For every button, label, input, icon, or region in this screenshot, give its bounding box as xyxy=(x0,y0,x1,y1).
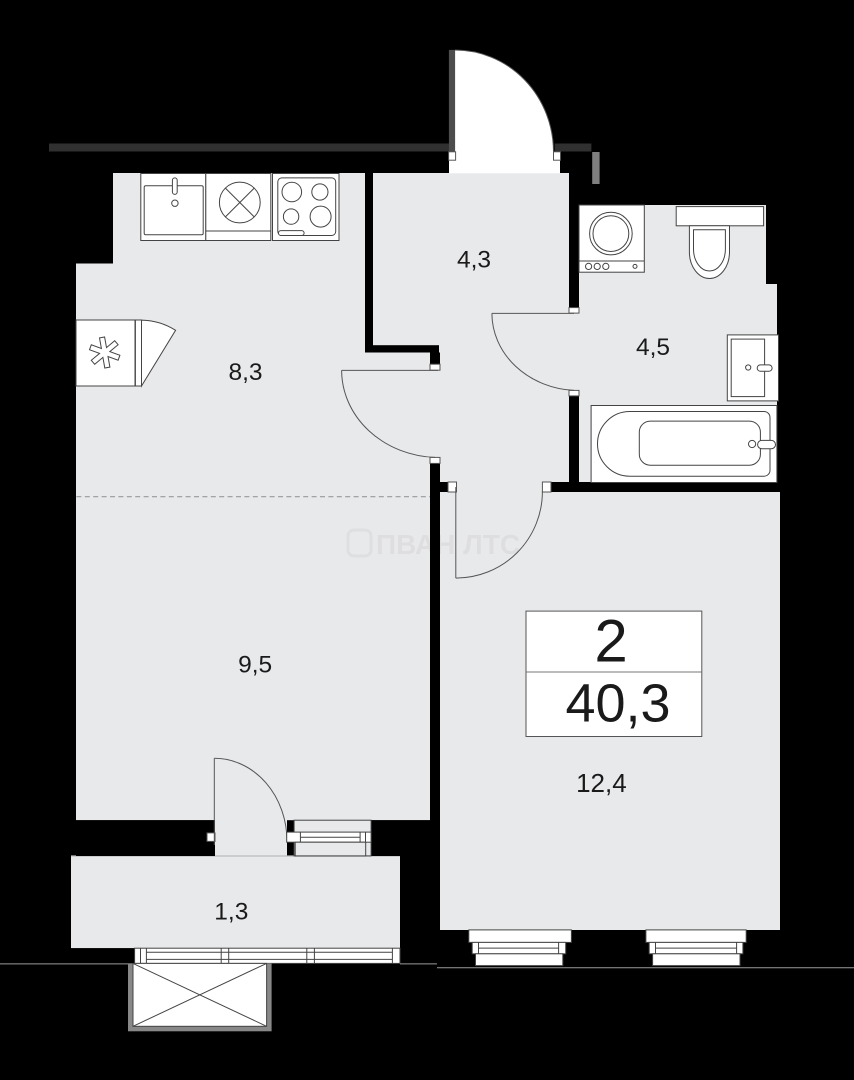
svg-text:2: 2 xyxy=(594,608,627,675)
svg-text:8,3: 8,3 xyxy=(228,359,262,386)
svg-text:4,5: 4,5 xyxy=(636,334,670,361)
svg-text:9,5: 9,5 xyxy=(238,651,272,678)
svg-text:1,3: 1,3 xyxy=(214,899,248,926)
svg-text:12,4: 12,4 xyxy=(576,768,627,798)
svg-text:ПВАН ЛТС: ПВАН ЛТС xyxy=(376,529,520,560)
svg-text:40,3: 40,3 xyxy=(565,674,670,734)
svg-text:4,3: 4,3 xyxy=(457,246,491,273)
